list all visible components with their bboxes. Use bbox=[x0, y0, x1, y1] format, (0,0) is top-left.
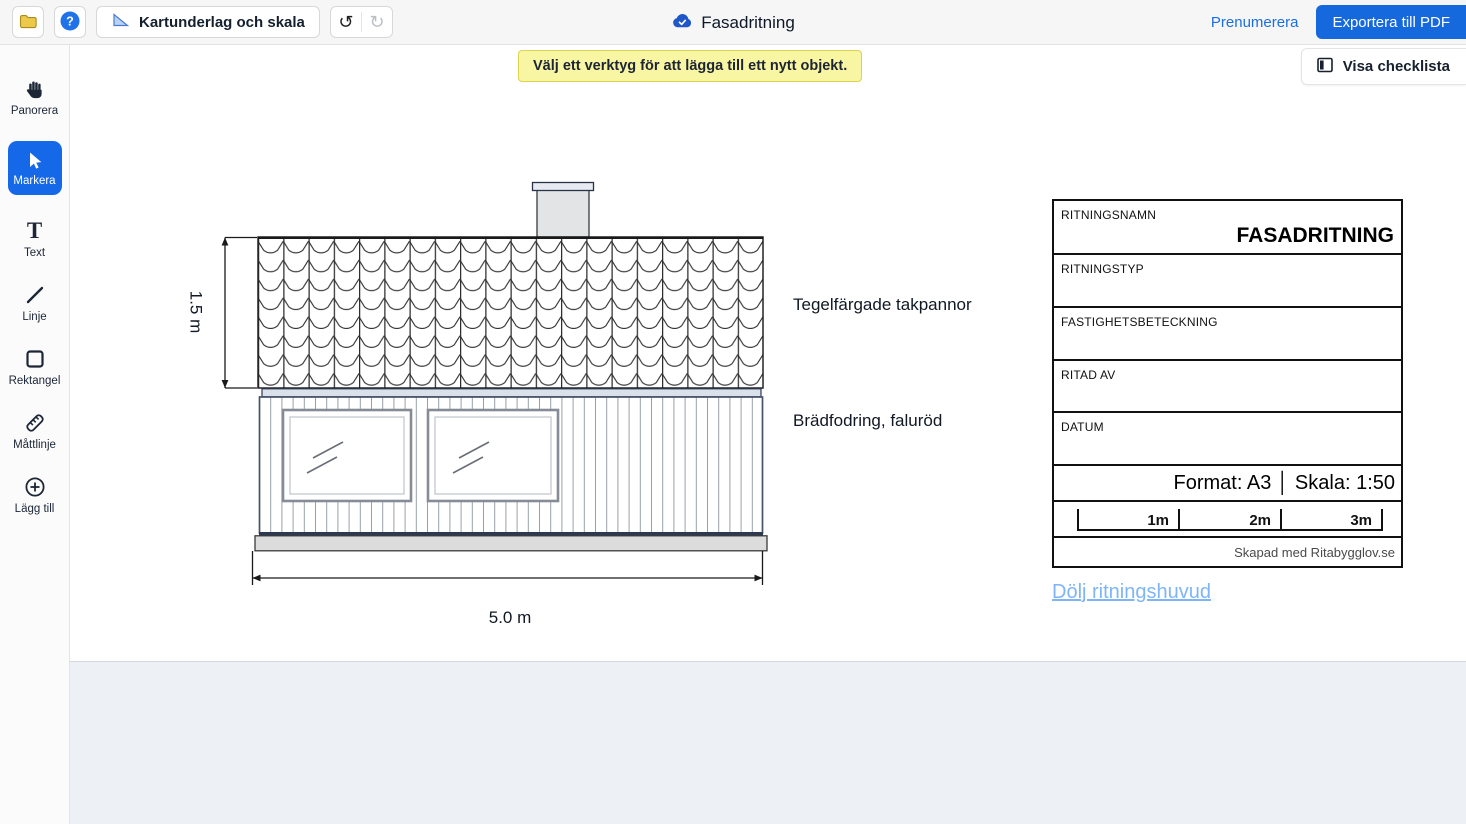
sidebar-item-label: Markera bbox=[13, 175, 55, 187]
scale-tick-0 bbox=[1077, 509, 1079, 531]
titleblock-row-ritad-av: RITAD AV bbox=[1054, 361, 1401, 413]
dimension-label-width: 5.0 m bbox=[489, 608, 532, 627]
cloud-saved-icon bbox=[671, 11, 693, 34]
undo-button[interactable]: ↺ bbox=[331, 7, 361, 37]
sidebar-item-label: Text bbox=[24, 247, 45, 259]
plus-circle-icon bbox=[24, 475, 46, 499]
map-scale-button[interactable]: Kartunderlag och skala bbox=[96, 6, 320, 38]
drawing-canvas[interactable]: 1.5 m 5.0 m Tegelfärgade takpannor Brädf… bbox=[70, 45, 1466, 662]
tool-hint-banner: Välj ett verktyg för att lägga till ett … bbox=[518, 50, 862, 82]
chimney[interactable] bbox=[533, 183, 594, 238]
rectangle-icon bbox=[24, 347, 46, 371]
sidebar-item-label: Panorera bbox=[11, 105, 58, 117]
dimension-roof-height[interactable]: 1.5 m bbox=[187, 238, 257, 389]
help-icon: ? bbox=[59, 10, 81, 35]
show-checklist-label: Visa checklista bbox=[1343, 58, 1450, 75]
svg-text:?: ? bbox=[66, 14, 74, 28]
field-label: RITNINGSNAMN bbox=[1061, 208, 1156, 222]
scale-tick-3 bbox=[1381, 509, 1383, 531]
titleblock-row-ritningsnamn: RITNINGSNAMN FASADRITNING bbox=[1054, 201, 1401, 255]
dimension-building-width[interactable]: 5.0 m bbox=[253, 551, 763, 627]
wall-base-line bbox=[259, 532, 763, 536]
sidebar-item-label: Lägg till bbox=[15, 503, 55, 515]
help-button[interactable]: ? bbox=[54, 6, 86, 38]
sidebar-item-lagg-till[interactable]: Lägg till bbox=[4, 475, 66, 515]
tool-sidebar: Panorera Markera T Text Linje Rektangel bbox=[0, 45, 70, 824]
document-title-area: Fasadritning bbox=[671, 0, 795, 45]
window-right[interactable] bbox=[428, 410, 558, 501]
redo-button[interactable]: ↻ bbox=[362, 7, 392, 37]
app-window: ? Kartunderlag och skala ↺ ↻ Fasadritnin… bbox=[0, 0, 1466, 824]
measure-icon bbox=[23, 411, 47, 435]
subscribe-link[interactable]: Prenumerera bbox=[1211, 14, 1299, 31]
sidebar-item-label: Måttlinje bbox=[13, 439, 56, 451]
outside-page-area[interactable] bbox=[70, 663, 1466, 824]
toolbar-left-group: ? Kartunderlag och skala ↺ ↻ bbox=[0, 6, 393, 38]
titleblock-row-datum: DATUM bbox=[1054, 413, 1401, 466]
hide-titleblock-link[interactable]: Dölj ritningshuvud bbox=[1052, 581, 1211, 604]
line-icon bbox=[24, 283, 46, 307]
top-toolbar: ? Kartunderlag och skala ↺ ↻ Fasadritnin… bbox=[0, 0, 1466, 45]
window-left[interactable] bbox=[283, 410, 411, 501]
roof[interactable] bbox=[258, 237, 763, 388]
scale-label-2m: 2m bbox=[1249, 512, 1271, 529]
sidebar-item-rektangel[interactable]: Rektangel bbox=[4, 347, 66, 387]
sidebar-item-panorera[interactable]: Panorera bbox=[4, 77, 66, 117]
panel-icon bbox=[1316, 56, 1334, 78]
field-label: RITAD AV bbox=[1061, 368, 1116, 382]
sidebar-item-text[interactable]: T Text bbox=[4, 219, 66, 259]
scale-label-1m: 1m bbox=[1147, 512, 1169, 529]
sidebar-item-label: Linje bbox=[22, 311, 46, 323]
roof-annotation[interactable]: Tegelfärgade takpannor bbox=[793, 295, 972, 315]
text-icon: T bbox=[27, 219, 42, 243]
toolbar-right-group: Prenumerera Exportera till PDF bbox=[1211, 5, 1466, 39]
fascia-board bbox=[262, 389, 761, 397]
show-checklist-button[interactable]: Visa checklista bbox=[1301, 48, 1466, 85]
field-label: DATUM bbox=[1061, 420, 1104, 434]
cursor-icon bbox=[25, 149, 45, 173]
scale-label-3m: 3m bbox=[1350, 512, 1372, 529]
title-block: RITNINGSNAMN FASADRITNING RITNINGSTYP FA… bbox=[1052, 199, 1403, 568]
format-scale-row: Format: A3 │ Skala: 1:50 bbox=[1054, 466, 1401, 502]
sidebar-item-mattlinje[interactable]: Måttlinje bbox=[4, 411, 66, 451]
titleblock-row-ritningstyp: RITNINGSTYP bbox=[1054, 255, 1401, 308]
sidebar-item-label: Rektangel bbox=[9, 375, 61, 387]
document-title: Fasadritning bbox=[701, 13, 795, 33]
scale-tick-1 bbox=[1178, 509, 1180, 531]
scale-bar-baseline bbox=[1077, 529, 1382, 531]
sidebar-item-markera[interactable]: Markera bbox=[8, 141, 62, 195]
export-pdf-button[interactable]: Exportera till PDF bbox=[1316, 5, 1466, 39]
drawing-name-value: FASADRITNING bbox=[1237, 224, 1395, 248]
undo-redo-group: ↺ ↻ bbox=[330, 6, 393, 38]
map-scale-label: Kartunderlag och skala bbox=[139, 14, 305, 31]
scale-bar: 1m 2m 3m bbox=[1054, 502, 1401, 538]
scale-tick-2 bbox=[1280, 509, 1282, 531]
hand-icon bbox=[24, 77, 46, 101]
files-button[interactable] bbox=[12, 6, 44, 38]
facade-annotation[interactable]: Brädfodring, faluröd bbox=[793, 411, 942, 431]
credit-text: Skapad med Ritabygglov.se bbox=[1054, 538, 1401, 566]
sidebar-item-linje[interactable]: Linje bbox=[4, 283, 66, 323]
foundation bbox=[255, 536, 767, 551]
dimension-label-height: 1.5 m bbox=[187, 291, 206, 334]
folder-icon bbox=[18, 11, 38, 34]
field-label: RITNINGSTYP bbox=[1061, 262, 1144, 276]
set-square-icon bbox=[111, 10, 131, 34]
field-label: FASTIGHETSBETECKNING bbox=[1061, 315, 1218, 329]
titleblock-row-fastighetsbeteckning: FASTIGHETSBETECKNING bbox=[1054, 308, 1401, 361]
